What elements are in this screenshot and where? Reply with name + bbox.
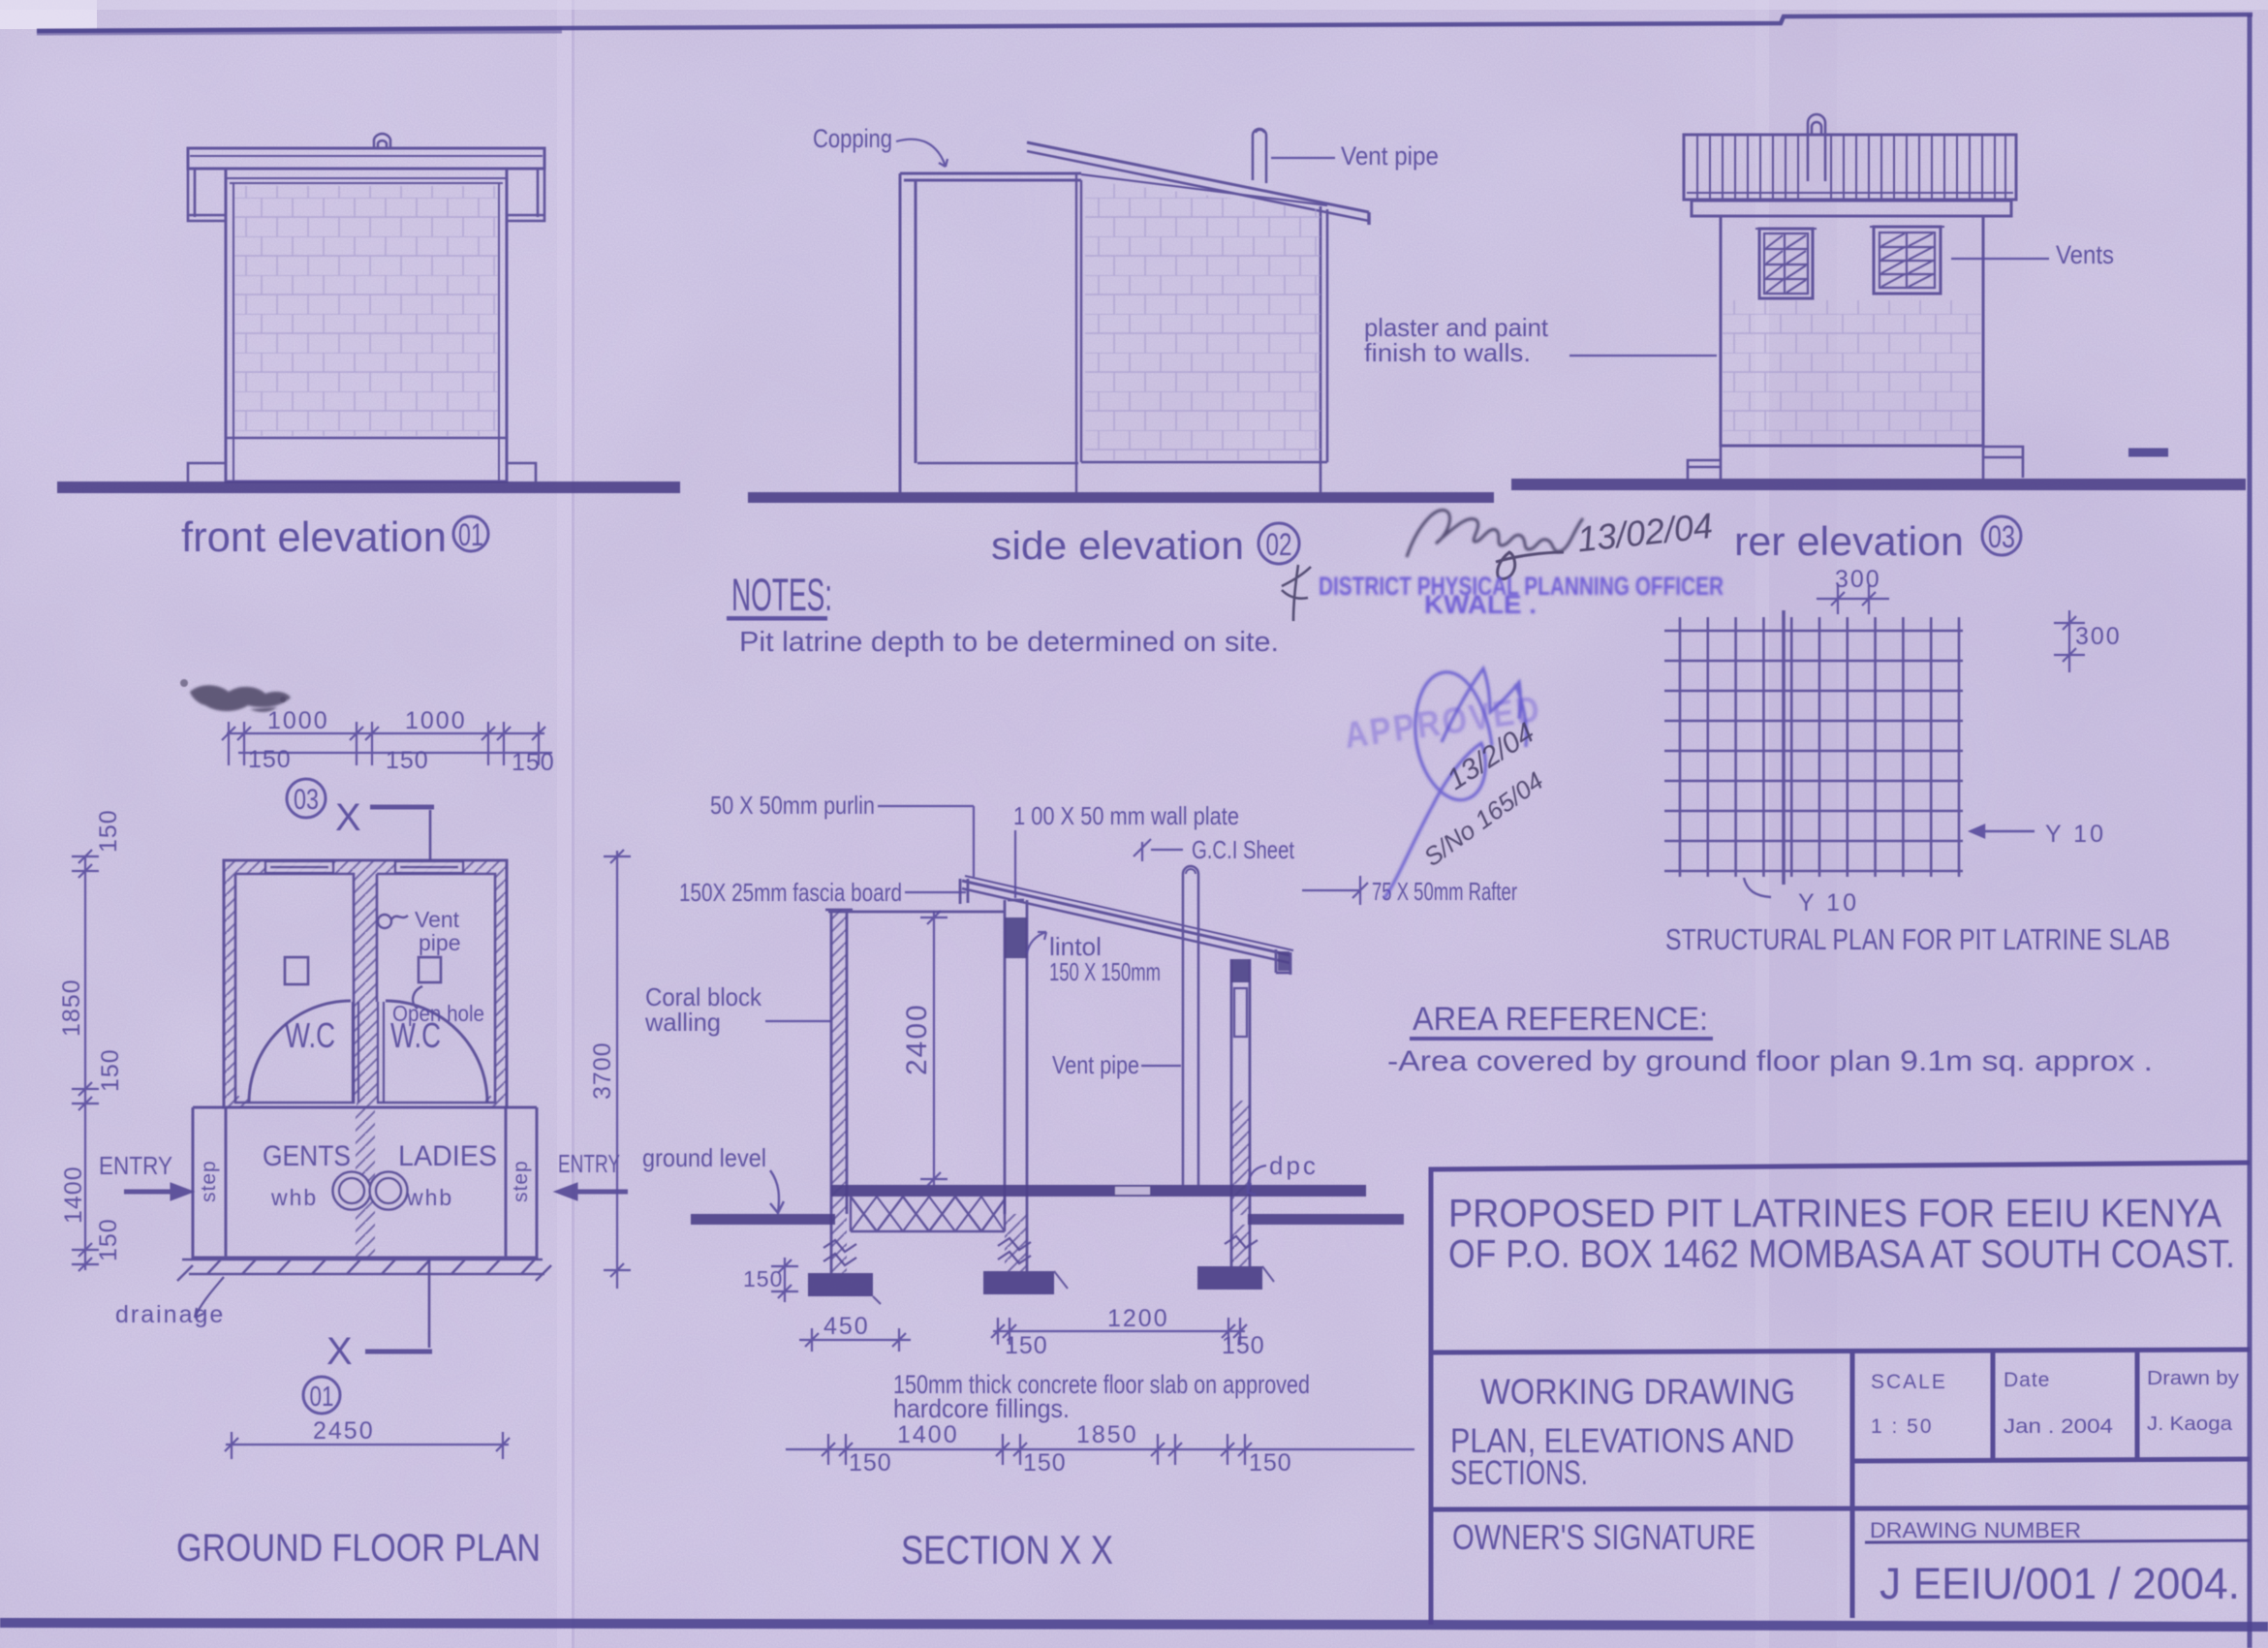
svg-text:150: 150 [512, 749, 555, 776]
svg-text:G.C.I Sheet: G.C.I Sheet [1192, 835, 1295, 864]
svg-text:SCALE: SCALE [1871, 1371, 1947, 1393]
svg-text:GENTS: GENTS [263, 1140, 351, 1172]
svg-text:450: 450 [823, 1313, 870, 1340]
svg-text:1850: 1850 [1076, 1421, 1138, 1448]
svg-text:1 : 50: 1 : 50 [1871, 1415, 1934, 1438]
svg-text:3700: 3700 [589, 1042, 616, 1100]
svg-text:Vent pipe: Vent pipe [1341, 141, 1439, 171]
svg-text:150X 25mm fascia board: 150X 25mm fascia board [679, 878, 902, 907]
svg-text:LADIES: LADIES [398, 1140, 497, 1172]
svg-text:150: 150 [1222, 1332, 1265, 1359]
svg-text:OWNER'S SIGNATURE: OWNER'S SIGNATURE [1452, 1517, 1755, 1557]
svg-text:SECTION X X: SECTION X X [901, 1527, 1113, 1572]
svg-text:Vent: Vent [415, 907, 460, 932]
svg-text:STRUCTURAL PLAN FOR PIT: STRUCTURAL PLAN FOR PIT LATRINE SLAB [1665, 922, 2170, 956]
svg-text:step: step [510, 1160, 532, 1202]
svg-text:whb: whb [406, 1185, 453, 1210]
svg-text:DRAWING NUMBER: DRAWING NUMBER [1870, 1518, 2081, 1542]
svg-text:drainage: drainage [115, 1301, 225, 1328]
svg-text:KWALE .: KWALE . [1424, 590, 1537, 619]
svg-text:2400: 2400 [901, 1003, 933, 1075]
svg-text:150: 150 [386, 747, 429, 774]
svg-text:Pit latrine depth to be determ: Pit latrine depth to be determined on si… [739, 627, 1279, 658]
svg-text:SECTIONS.: SECTIONS. [1450, 1454, 1588, 1492]
svg-text:X: X [326, 1330, 353, 1373]
svg-text:2450: 2450 [313, 1417, 375, 1445]
svg-text:Copping: Copping [813, 124, 892, 153]
svg-text:ENTRY: ENTRY [99, 1151, 172, 1180]
svg-text:pipe: pipe [419, 930, 460, 955]
svg-text:150: 150 [849, 1449, 892, 1477]
svg-text:J EEIU/001 / 2004.: J EEIU/001 / 2004. [1880, 1559, 2240, 1608]
svg-text:walling: walling [644, 1008, 721, 1037]
svg-text:whb: whb [270, 1185, 318, 1210]
svg-text:-Area covered by ground flo: -Area covered by ground floor plan 9.1m … [1387, 1045, 2153, 1077]
svg-text:03: 03 [1988, 519, 2015, 554]
svg-text:AREA REFERENCE:: AREA REFERENCE: [1413, 1001, 1708, 1038]
svg-text:150: 150 [97, 1048, 124, 1092]
svg-text:finish to walls.: finish to walls. [1364, 338, 1531, 367]
svg-text:03: 03 [294, 784, 319, 816]
svg-text:300: 300 [2075, 623, 2122, 650]
svg-text:150: 150 [248, 746, 292, 773]
svg-text:01: 01 [458, 517, 483, 552]
svg-text:1 00 X 50 mm wall plate: 1 00 X 50 mm wall plate [1013, 801, 1239, 830]
svg-text:WORKING DRAWING: WORKING DRAWING [1480, 1372, 1795, 1412]
svg-text:rer elevation: rer elevation [1734, 518, 1964, 564]
svg-text:W.C: W.C [285, 1015, 335, 1055]
svg-text:step: step [198, 1160, 220, 1202]
svg-text:1000: 1000 [405, 707, 467, 734]
svg-text:Jan . 2004: Jan . 2004 [2004, 1415, 2113, 1438]
svg-text:150 X 150mm: 150 X 150mm [1049, 957, 1161, 986]
svg-text:ground level: ground level [642, 1143, 766, 1172]
svg-text:1400: 1400 [60, 1166, 87, 1224]
svg-text:Vents: Vents [2056, 240, 2114, 269]
svg-text:ENTRY: ENTRY [558, 1149, 620, 1178]
svg-text:GROUND FLOOR PLAN: GROUND FLOOR PLAN [176, 1527, 541, 1570]
svg-text:150: 150 [1023, 1449, 1067, 1477]
svg-text:300: 300 [1835, 566, 1881, 593]
svg-text:1850: 1850 [58, 979, 85, 1037]
svg-text:W.C: W.C [390, 1015, 441, 1055]
svg-text:150: 150 [95, 809, 122, 853]
svg-text:150: 150 [1005, 1332, 1048, 1359]
svg-text:150: 150 [95, 1218, 122, 1261]
svg-text:PROPOSED PIT LATRINES FOR: PROPOSED PIT LATRINES FOR EEIU KENYA [1448, 1191, 2222, 1235]
svg-text:50 X 50mm purlin: 50 X 50mm purlin [710, 791, 875, 820]
svg-text:hardcore fillings.: hardcore fillings. [893, 1394, 1070, 1423]
svg-text:front elevation: front elevation [181, 513, 447, 561]
svg-text:1200: 1200 [1107, 1305, 1169, 1332]
svg-text:150: 150 [1249, 1449, 1292, 1477]
svg-text:02: 02 [1266, 527, 1292, 562]
svg-text:Y 10: Y 10 [1798, 889, 1859, 917]
svg-text:NOTES:: NOTES: [731, 569, 832, 620]
svg-text:Y 10: Y 10 [2045, 821, 2106, 848]
svg-text:Date: Date [2004, 1369, 2050, 1391]
svg-text:side elevation: side elevation [991, 523, 1244, 568]
svg-text:OF P.O. BOX 1462 MOMBASA A: OF P.O. BOX 1462 MOMBASA AT SOUTH COAST. [1448, 1231, 2235, 1276]
svg-text:Drawn by: Drawn by [2147, 1368, 2239, 1389]
svg-text:01: 01 [310, 1382, 334, 1413]
svg-text:Vent pipe: Vent pipe [1052, 1050, 1139, 1079]
svg-text:150: 150 [743, 1266, 783, 1291]
svg-text:dpc: dpc [1269, 1151, 1319, 1180]
svg-text:X: X [335, 796, 361, 839]
svg-text:1000: 1000 [267, 707, 329, 734]
svg-text:J. Kaoga: J. Kaoga [2147, 1414, 2233, 1435]
svg-text:1400: 1400 [897, 1421, 959, 1448]
